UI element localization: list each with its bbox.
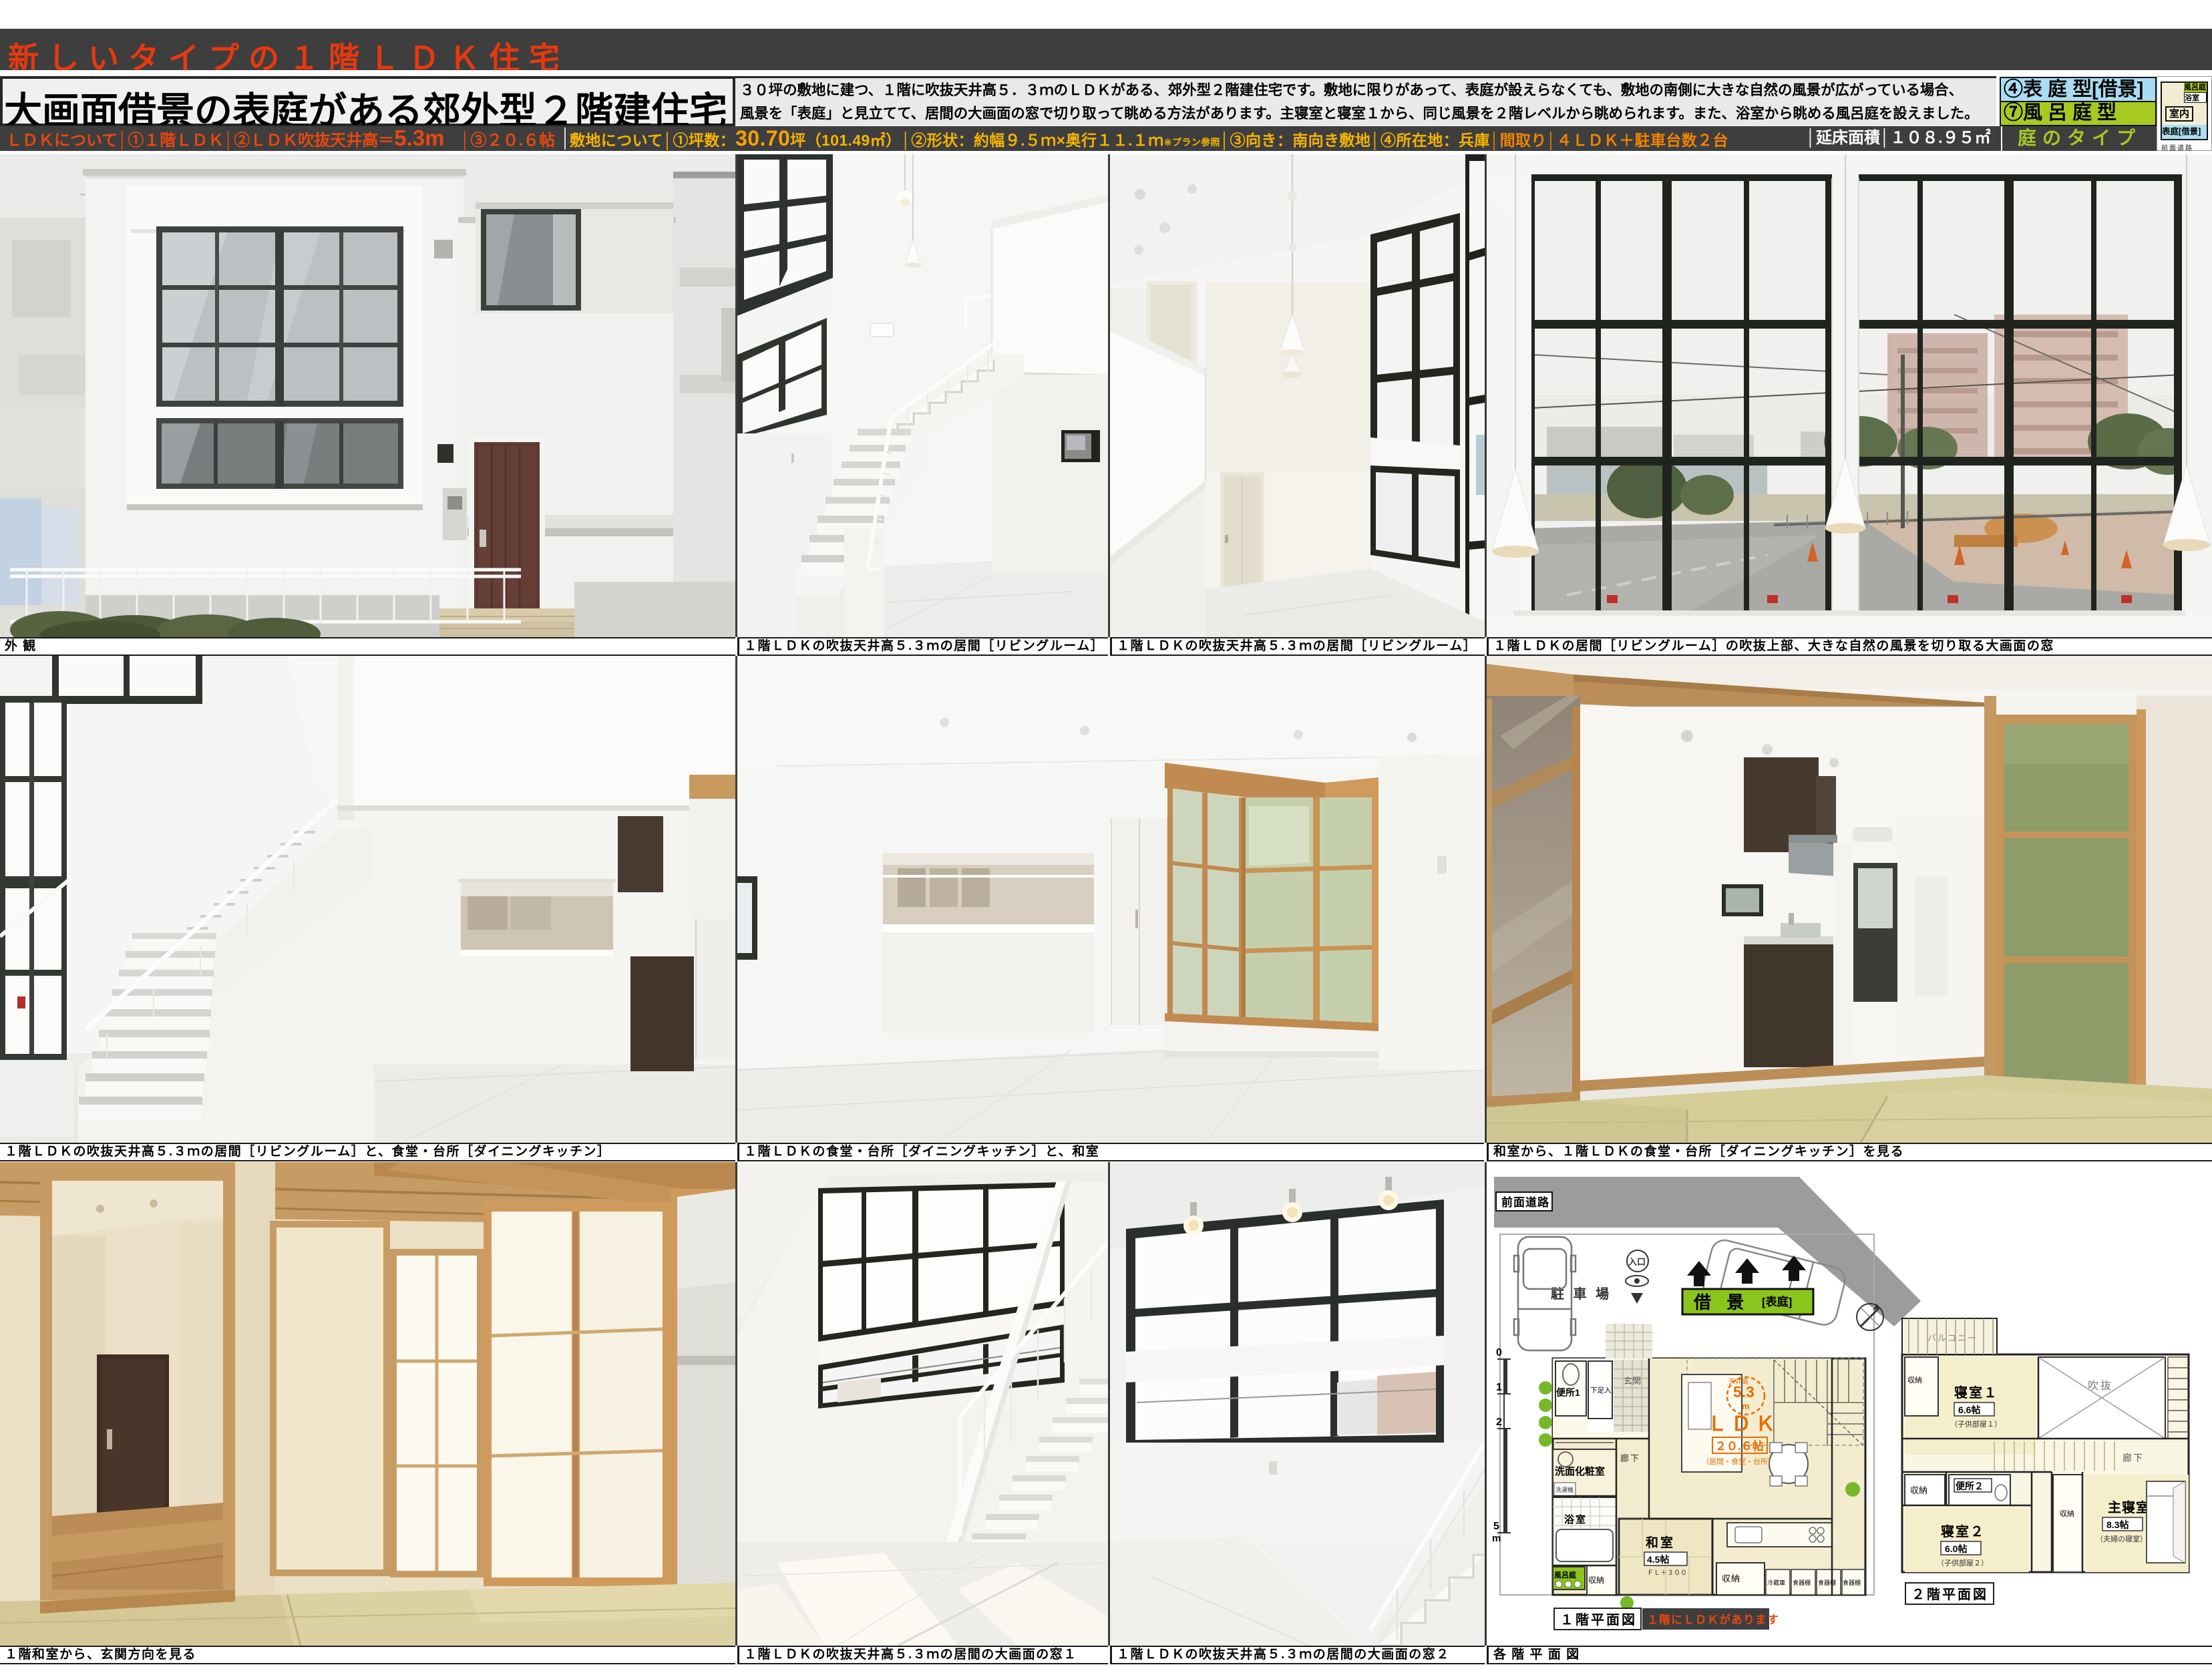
svg-text:和室: 和室: [1646, 1535, 1675, 1550]
svg-text:[表庭]: [表庭]: [1762, 1295, 1792, 1308]
svg-text:洗面化粧室: 洗面化粧室: [1555, 1465, 1605, 1477]
svg-text:ＦＬ＋３００: ＦＬ＋３００: [1647, 1569, 1687, 1577]
svg-text:バルコニー: バルコニー: [1927, 1333, 1978, 1343]
svg-text:収納: 収納: [1722, 1573, 1740, 1584]
svg-text:寝室２: 寝室２: [1941, 1523, 1985, 1539]
svg-text:前面道路: 前面道路: [1501, 1195, 1549, 1209]
svg-text:4.5帖: 4.5帖: [1647, 1554, 1669, 1565]
svg-text:収納: 収納: [1588, 1575, 1604, 1585]
svg-text:0: 0: [1496, 1347, 1502, 1358]
svg-text:借 景: 借 景: [1693, 1292, 1749, 1312]
svg-text:浴室: 浴室: [1564, 1513, 1587, 1525]
svg-text:吹抜: 吹抜: [2088, 1380, 2113, 1392]
svg-text:１階にＬＤＫがあります: １階にＬＤＫがあります: [1647, 1613, 1779, 1626]
svg-text:風呂庭: 風呂庭: [1554, 1570, 1576, 1580]
svg-text:便所２: 便所２: [1956, 1481, 1984, 1491]
svg-text:冷蔵庫: 冷蔵庫: [1767, 1579, 1785, 1586]
svg-text:m: m: [1492, 1533, 1501, 1544]
svg-text:ＬＤＫ: ＬＤＫ: [1707, 1413, 1779, 1435]
svg-text:2: 2: [1496, 1417, 1502, 1428]
svg-text:食器棚: 食器棚: [1843, 1579, 1861, 1586]
svg-text:食器棚: 食器棚: [1818, 1579, 1836, 1586]
svg-text:収納: 収納: [1910, 1485, 1927, 1495]
svg-text:２０.６帖: ２０.６帖: [1715, 1439, 1764, 1453]
svg-text:（子供部屋２）: （子供部屋２）: [1937, 1558, 1988, 1567]
svg-text:天井高: 天井高: [1728, 1377, 1748, 1386]
svg-text:下足入: 下足入: [1590, 1386, 1612, 1395]
svg-text:主寝室: 主寝室: [2108, 1499, 2150, 1515]
svg-text:（夫婦の寝室）: （夫婦の寝室）: [2096, 1534, 2147, 1543]
svg-text:収納: 収納: [1907, 1376, 1922, 1384]
svg-text:廊下: 廊下: [1620, 1453, 1640, 1463]
svg-text:洗濯機: 洗濯機: [1555, 1486, 1574, 1493]
svg-text:（子供部屋１）: （子供部屋１）: [1950, 1419, 2002, 1429]
svg-text:m: m: [1742, 1401, 1750, 1411]
svg-text:玄関: 玄関: [1624, 1376, 1641, 1386]
svg-text:8.3帖: 8.3帖: [2106, 1519, 2129, 1530]
svg-text:入口: 入口: [1628, 1257, 1646, 1267]
svg-text:１階平面図: １階平面図: [1560, 1612, 1637, 1628]
svg-text:6.6帖: 6.6帖: [1958, 1405, 1980, 1415]
svg-text:1: 1: [1496, 1382, 1502, 1393]
svg-text:6.0帖: 6.0帖: [1945, 1543, 1967, 1554]
svg-text:駐 車 場: 駐 車 場: [1551, 1286, 1612, 1302]
svg-text:5: 5: [1493, 1521, 1499, 1532]
svg-text:２階平面図: ２階平面図: [1911, 1587, 1988, 1602]
svg-text:食器棚: 食器棚: [1793, 1579, 1811, 1586]
svg-text:廊下: 廊下: [2123, 1453, 2144, 1463]
svg-text:収納: 収納: [2060, 1509, 2074, 1518]
svg-text:便所1: 便所1: [1556, 1387, 1580, 1398]
svg-text:寝室１: 寝室１: [1954, 1384, 1998, 1401]
svg-text:（居間・食堂・台所）: （居間・食堂・台所）: [1702, 1457, 1775, 1466]
